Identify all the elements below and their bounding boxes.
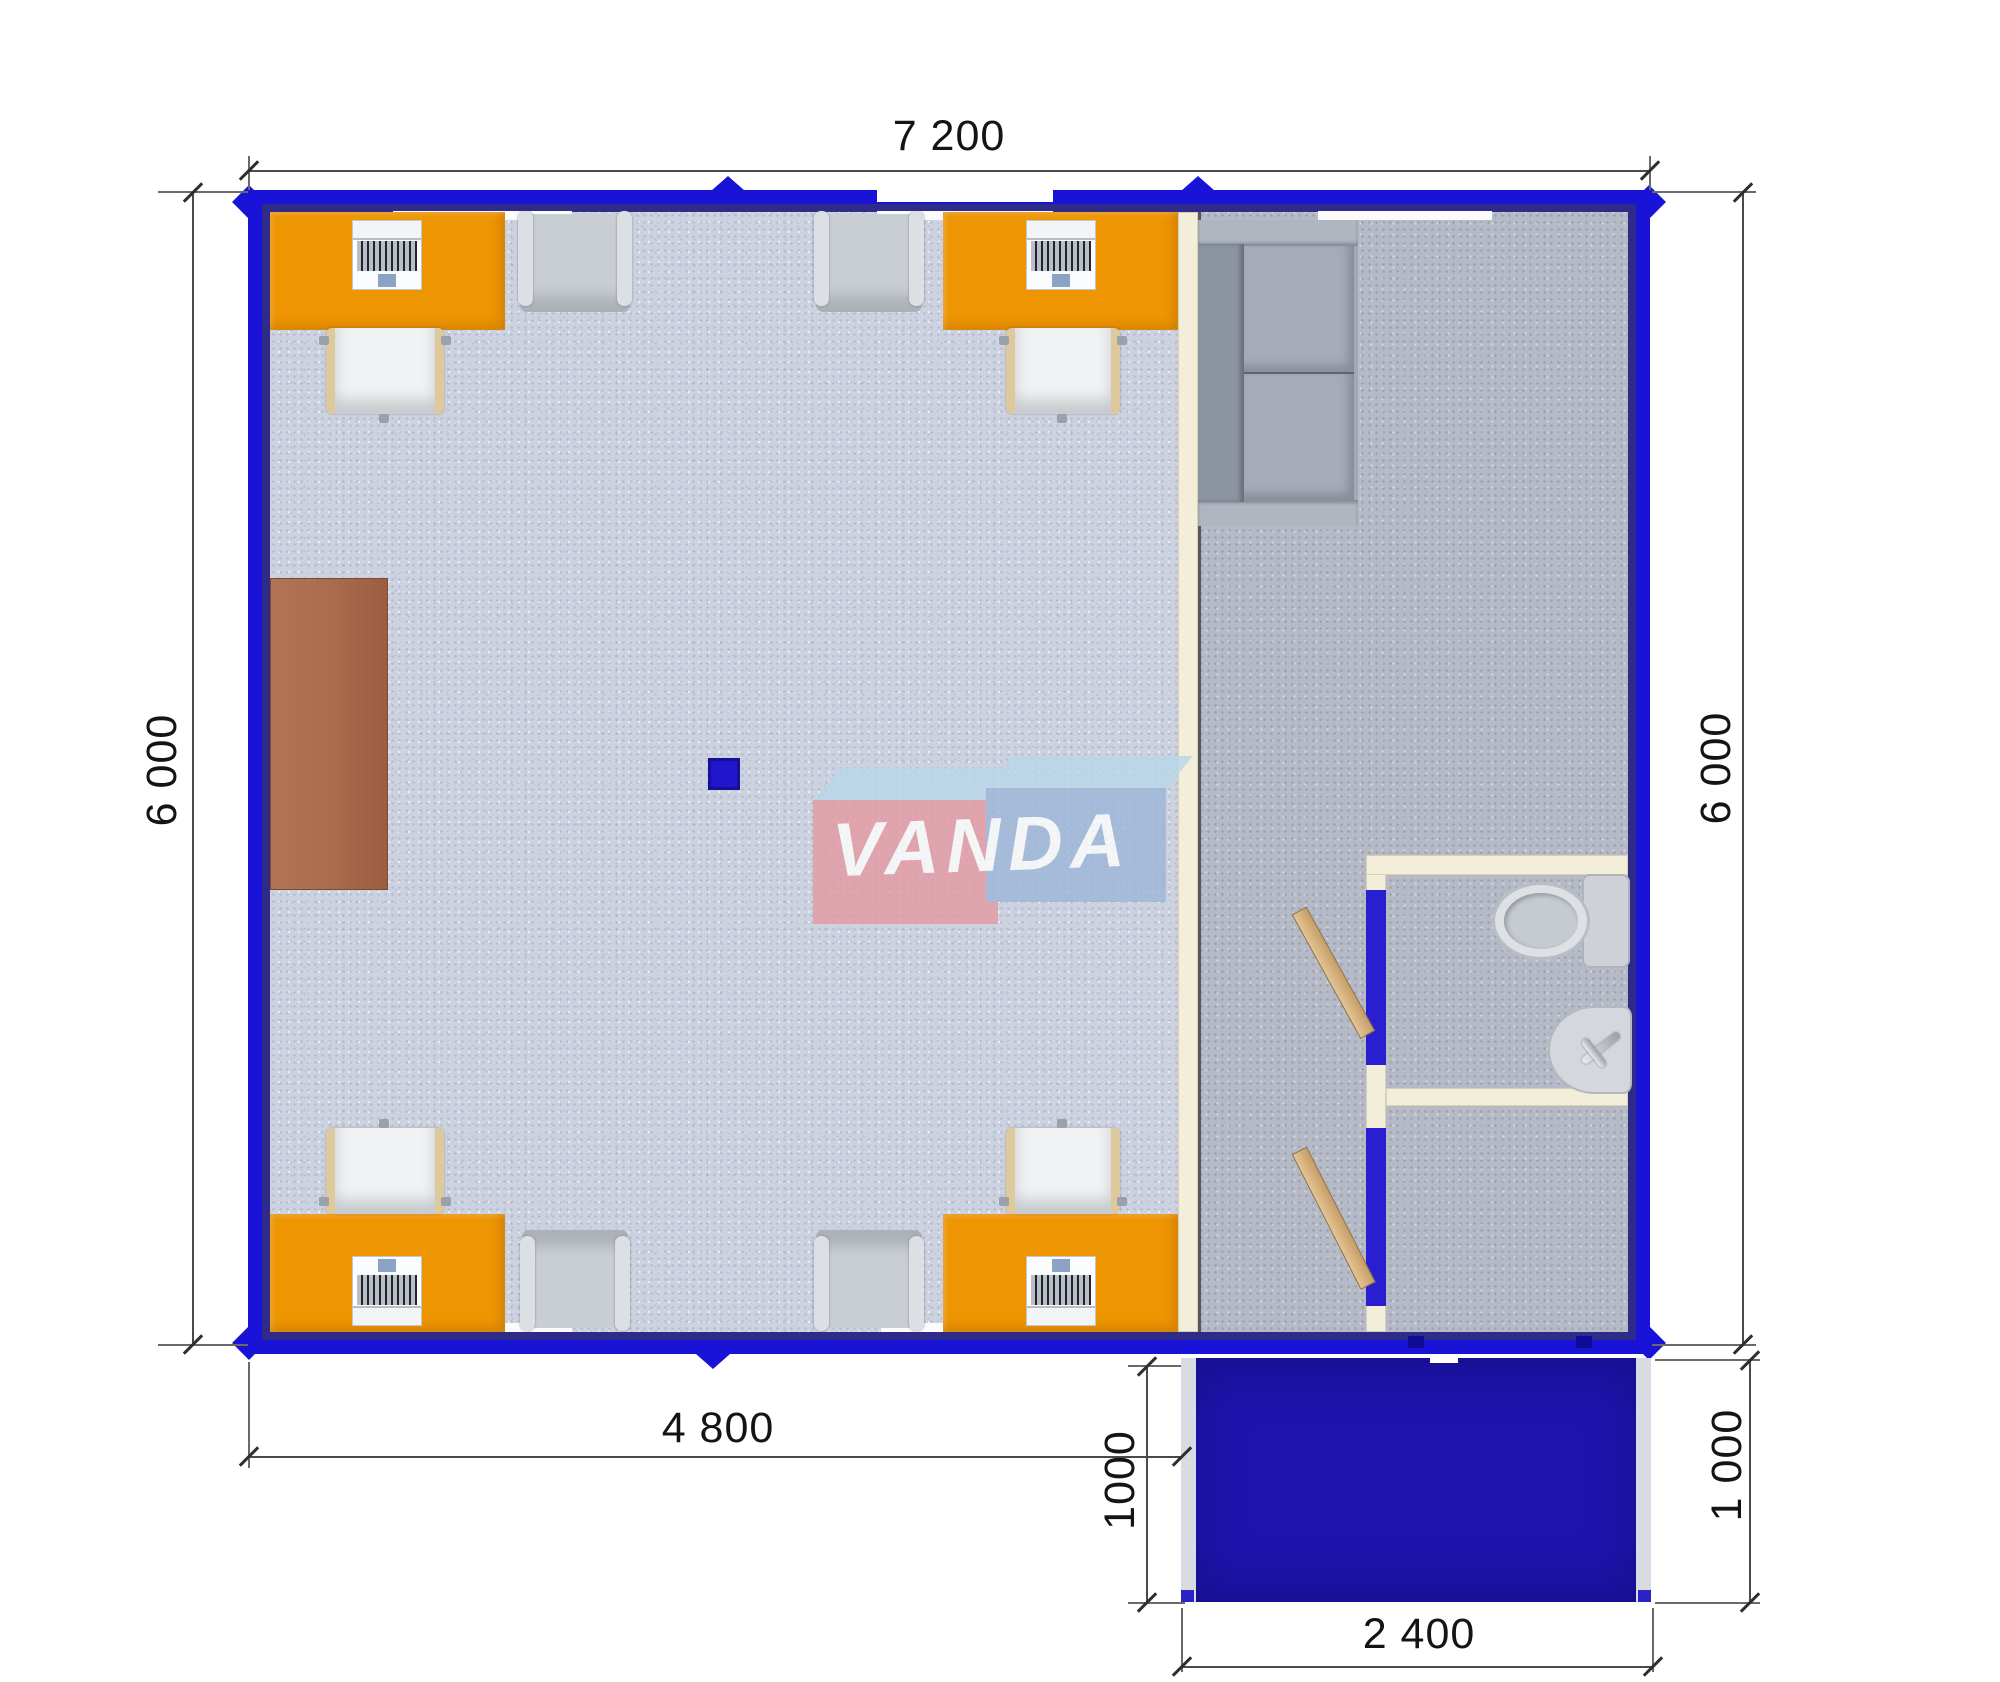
dim-label-left: 6 000 <box>134 670 190 870</box>
toilet-room-top-wall <box>1366 855 1628 875</box>
toilet-door-opening <box>1366 890 1386 1065</box>
office-chair <box>326 328 444 414</box>
office-chair <box>326 1128 444 1214</box>
logo-text: VANDA <box>831 797 1133 894</box>
laptop <box>352 220 422 290</box>
dim-label-porch-left: 1000 <box>1092 1380 1148 1580</box>
logo-blue-top-face <box>986 756 1193 790</box>
porch-post <box>1181 1590 1194 1602</box>
dim-line-porch-width <box>1181 1666 1653 1668</box>
entrance-porch <box>1181 1358 1651 1602</box>
module-joint-marker <box>711 176 745 191</box>
laptop <box>1026 220 1096 290</box>
dim-extension <box>158 1344 248 1346</box>
bottom-wall-inner-stripe <box>262 1332 1636 1340</box>
desk <box>943 1214 1178 1332</box>
laptop <box>352 1256 422 1326</box>
dim-extension <box>1128 1602 1185 1604</box>
porch-side-rail <box>1636 1358 1651 1602</box>
dim-extension <box>248 1362 250 1468</box>
window-sill <box>1318 211 1492 220</box>
office-chair <box>1006 328 1120 414</box>
dim-label-right: 6 000 <box>1688 668 1744 868</box>
top-wall-window-gap <box>877 190 1053 202</box>
sofa <box>1198 220 1358 526</box>
dim-label-porch-right: 1 000 <box>1699 1365 1755 1565</box>
dim-extension <box>1128 1365 1181 1367</box>
porch-post <box>1638 1590 1651 1602</box>
office-chair <box>1006 1128 1120 1214</box>
armchair <box>522 1230 628 1328</box>
dim-extension <box>158 191 248 193</box>
dim-label-top: 7 200 <box>849 108 1049 164</box>
desk <box>270 212 505 330</box>
cabinet <box>270 578 388 890</box>
left-wall-inner-stripe <box>262 204 270 1340</box>
module-joint-marker <box>696 1354 730 1369</box>
module-joint-marker <box>1181 176 1215 191</box>
floor-plan-canvas: VANDA 7 200 6 000 6 000 4 800 1000 1 000… <box>0 0 2000 1682</box>
desk <box>270 1214 505 1332</box>
dim-line-top <box>248 170 1650 172</box>
armchair <box>520 214 630 312</box>
dim-line-office-width <box>248 1456 1181 1458</box>
toilet-icon <box>1492 882 1590 960</box>
armchair <box>816 1230 922 1328</box>
entrance-door-handle <box>1430 1354 1458 1363</box>
dim-line-left <box>192 192 194 1345</box>
right-wall-inner-stripe <box>1628 204 1636 1340</box>
porch-side-rail <box>1181 1358 1196 1602</box>
dim-extension <box>1655 1602 1760 1604</box>
desk <box>943 212 1178 330</box>
entrance-door-jamb <box>1576 1336 1592 1348</box>
armchair <box>816 214 922 312</box>
support-column <box>708 758 740 790</box>
laptop <box>1026 1256 1096 1326</box>
dim-label-porch-width: 2 400 <box>1319 1606 1519 1662</box>
dim-extension <box>1655 1359 1760 1361</box>
dim-label-office-width: 4 800 <box>618 1400 818 1456</box>
entrance-door-jamb <box>1408 1336 1424 1348</box>
sink-icon <box>1548 1006 1632 1094</box>
vanda-logo: VANDA <box>780 740 1200 940</box>
